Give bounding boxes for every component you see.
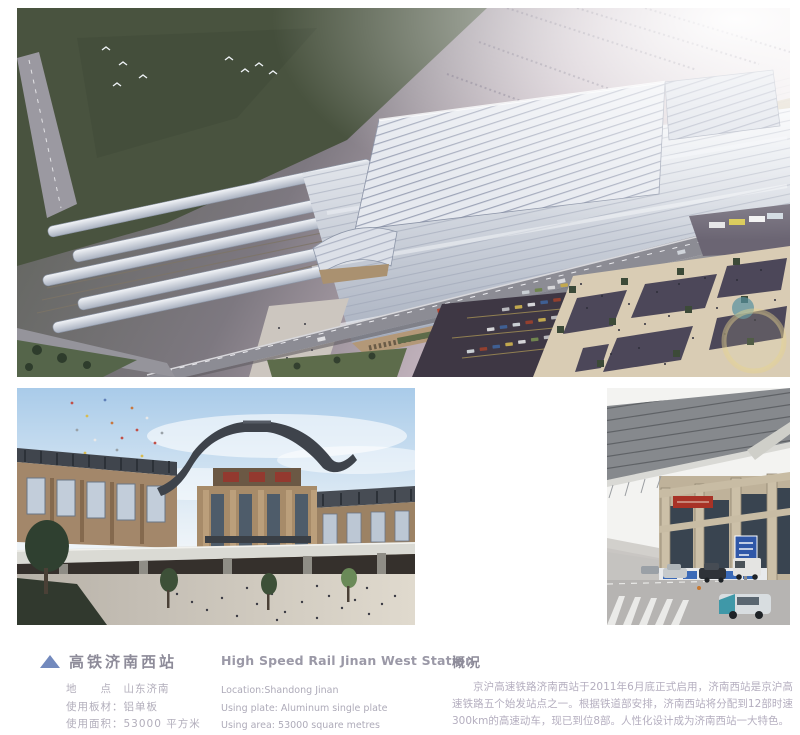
fire-hydrant bbox=[697, 586, 701, 590]
overview-heading: 概况 bbox=[452, 652, 793, 671]
overview-paragraph: 京沪高速铁路济南西站于2011年6月底正式启用，济南西站是京沪高速铁路五个始发站… bbox=[452, 679, 793, 730]
station-side-graphic bbox=[607, 388, 790, 625]
specs-en: Location:Shandong Jinan Using plate: Alu… bbox=[221, 682, 387, 735]
page-title-en: High Speed Rail Jinan West Station bbox=[221, 653, 474, 668]
spec-plate-en: Using plate: Aluminum single plate bbox=[221, 700, 387, 718]
spec-plate-zh: 使用板材：铝单板 bbox=[66, 699, 201, 717]
spec-location-en: Location:Shandong Jinan bbox=[221, 682, 387, 700]
station-front-graphic bbox=[17, 388, 415, 625]
overview-block: 概况 京沪高速铁路济南西站于2011年6月底正式启用，济南西站是京沪高速铁路五个… bbox=[452, 652, 793, 730]
photo-station-side bbox=[607, 388, 790, 625]
chinese-title-row: 高铁济南西站 bbox=[40, 651, 177, 672]
photo-station-front bbox=[17, 388, 415, 625]
sun-flare bbox=[17, 8, 790, 377]
triangle-icon bbox=[40, 655, 60, 668]
hero-aerial-rendering bbox=[17, 8, 790, 377]
entrance-canopy bbox=[205, 536, 311, 543]
spec-area-zh: 使用面积：53000 平方米 bbox=[66, 716, 201, 734]
spec-location-zh: 地 点 山东济南 bbox=[66, 681, 201, 699]
hero-rendering-graphic bbox=[17, 8, 790, 377]
page-title-zh: 高铁济南西站 bbox=[69, 651, 177, 672]
info-section: 高铁济南西站 地 点 山东济南 使用板材：铝单板 使用面积：53000 平方米 … bbox=[0, 648, 800, 732]
specs-zh: 地 点 山东济南 使用板材：铝单板 使用面积：53000 平方米 bbox=[66, 681, 201, 734]
